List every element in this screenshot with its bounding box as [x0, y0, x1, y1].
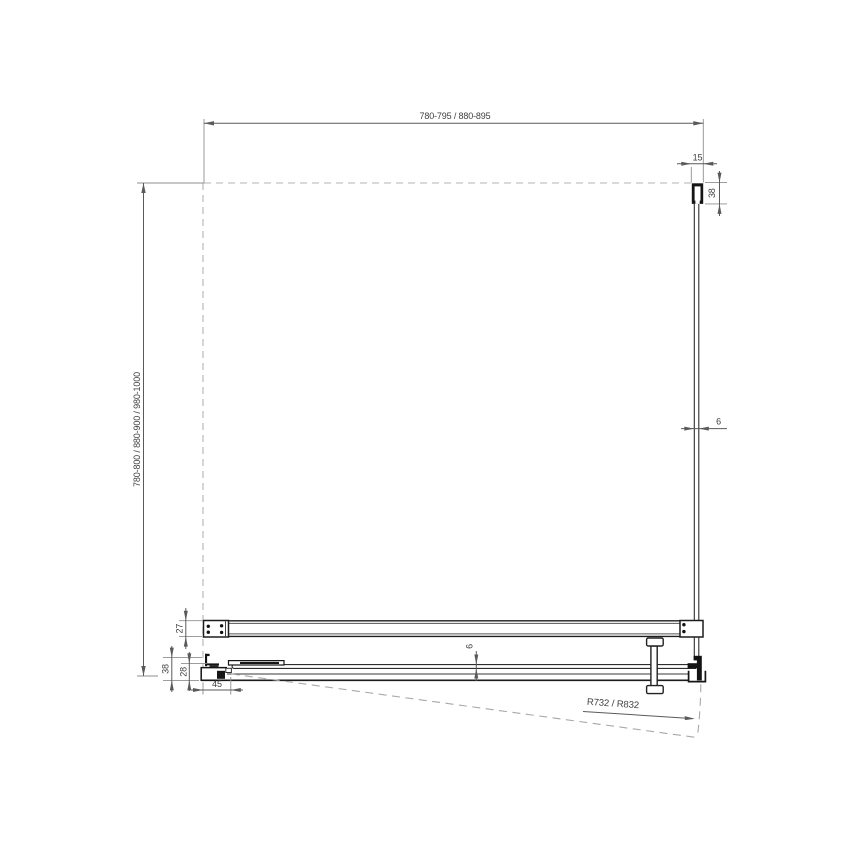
- handle-knob-inner: [647, 686, 664, 694]
- arrowhead-top: [141, 183, 145, 193]
- arrowhead-right: [699, 427, 709, 431]
- hinge-pin-step: [210, 665, 219, 667]
- dimension-overall-depth: 780-800 / 880-900 / 980-1000: [132, 183, 204, 676]
- arrowhead-top: [170, 648, 174, 658]
- door-swing-radius-label: R732 / R832: [587, 697, 640, 711]
- arrowhead-bottom: [184, 637, 188, 647]
- radius-leader-line: [583, 712, 693, 719]
- arrowhead-radius: [685, 716, 695, 720]
- dimension-side-glass-thickness: 6: [681, 417, 727, 431]
- arrowhead-right: [693, 121, 703, 125]
- enclosure-footprint-dashed: [203, 183, 692, 679]
- front-rail-depth-label: 27: [175, 624, 185, 634]
- rail-left-bracket: [204, 621, 229, 638]
- hinge-offset-label: 45: [212, 679, 222, 689]
- arrowhead-top: [187, 653, 191, 663]
- screw: [220, 624, 223, 627]
- dimension-wall-profile-depth: 38: [705, 171, 727, 216]
- screw: [682, 623, 685, 626]
- sill-inner-depth-label: 28: [178, 667, 188, 677]
- arrowhead-top: [184, 611, 188, 621]
- screw: [207, 631, 210, 634]
- door-handle: [647, 638, 664, 694]
- dimension-wall-profile-width: 15: [677, 153, 717, 183]
- arrowhead-top: [718, 173, 722, 183]
- hinge-pin-foot: [207, 663, 220, 665]
- corner-bracket-arm: [688, 663, 698, 668]
- arrowhead-bottom: [141, 666, 145, 676]
- side-glass-thickness-label: 6: [716, 417, 721, 427]
- hinge-pin-head: [205, 654, 210, 656]
- arrowhead-left: [684, 427, 694, 431]
- wall-profile-cavity: [695, 186, 701, 200]
- bottom-sill-profile: [201, 654, 705, 682]
- wall-profile-width-label: 15: [693, 153, 703, 163]
- corner-bracket-hook: [694, 656, 698, 661]
- screw: [220, 631, 223, 634]
- arrowhead-left: [193, 688, 203, 692]
- dimension-door-glass-thickness: 6: [465, 644, 479, 681]
- wall-profile-section: [692, 183, 703, 204]
- technical-drawing-canvas: 780-795 / 880-895 780-800 / 880-900 / 98…: [0, 0, 868, 868]
- sill-depth-label: 38: [161, 664, 171, 674]
- overall-width-label: 780-795 / 880-895: [419, 111, 490, 121]
- overall-depth-label: 780-800 / 880-900 / 980-1000: [132, 372, 142, 487]
- hinge-pin: [205, 654, 219, 667]
- screw: [682, 630, 685, 633]
- door-swing-arc-dashed: [697, 684, 701, 737]
- handle-stem: [651, 646, 657, 686]
- hinge-bracket-block: [217, 671, 225, 679]
- bottom-guide-insert: [240, 662, 279, 664]
- dimension-overall-width: 780-795 / 880-895: [204, 111, 703, 183]
- rail-right-bracket: [680, 621, 703, 638]
- wall-profile-depth-label: 38: [707, 188, 717, 198]
- arrowhead-right: [703, 162, 713, 166]
- arrowhead-left: [204, 121, 214, 125]
- hinge-bracket-notch: [226, 668, 232, 672]
- front-rail-profile: [204, 621, 704, 638]
- handle-knob-outer: [647, 638, 664, 646]
- dimension-front-rail-depth: 27: [175, 608, 203, 649]
- side-glass-panel: [694, 204, 699, 658]
- arrowhead-left: [681, 162, 691, 166]
- arrowhead-bottom: [170, 680, 174, 690]
- arrowhead-bottom: [718, 204, 722, 214]
- wall-profile-opening: [695, 199, 699, 204]
- door-swing: R732 / R832: [232, 674, 701, 738]
- arrowhead-bottom: [187, 680, 191, 690]
- arrowhead-right: [231, 688, 241, 692]
- door-glass-thickness-label: 6: [465, 644, 475, 649]
- arrowhead-top: [474, 655, 478, 665]
- screw: [207, 625, 210, 628]
